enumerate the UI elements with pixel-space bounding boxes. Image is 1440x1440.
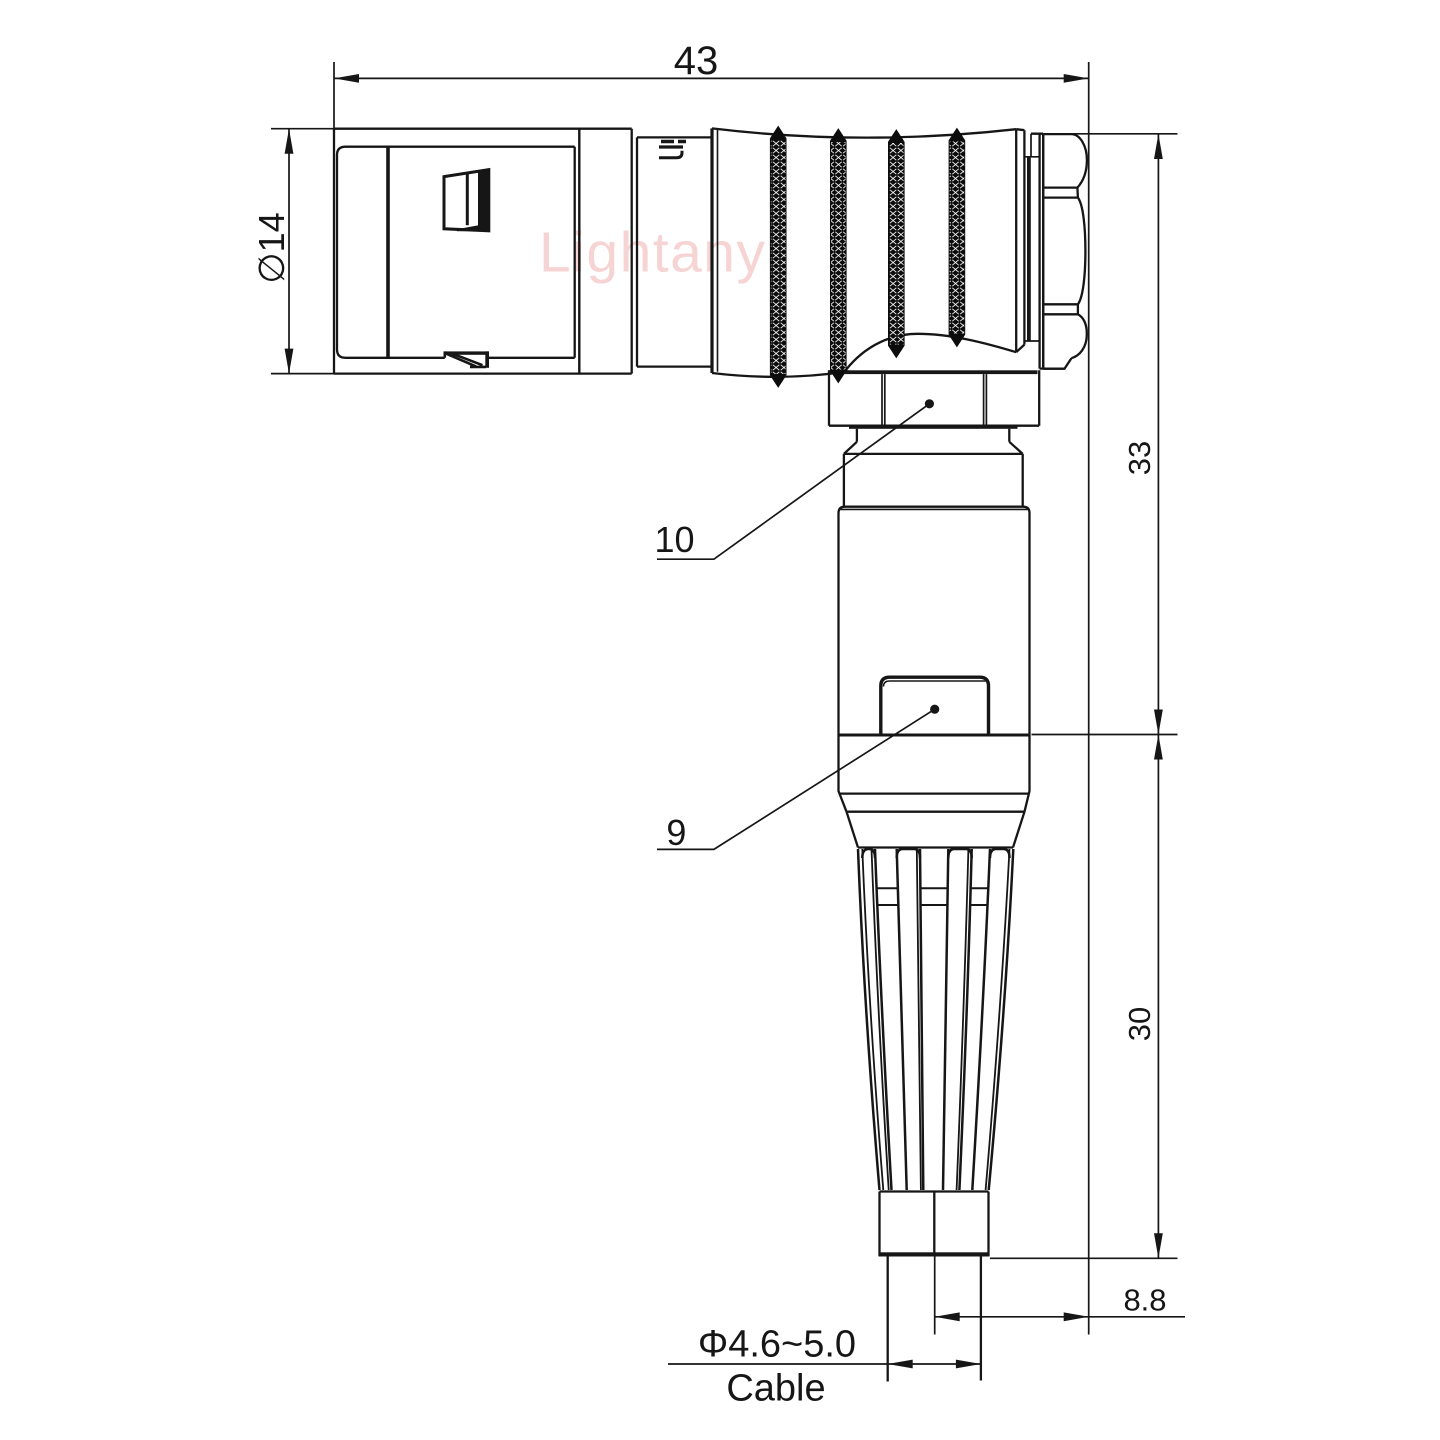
svg-text:43: 43 [674,39,719,83]
svg-text:Lightany: Lightany [539,221,767,285]
svg-text:9: 9 [666,812,686,853]
svg-text:∅14: ∅14 [251,212,292,283]
svg-text:8.8: 8.8 [1123,1283,1166,1318]
svg-text:30: 30 [1122,1007,1157,1041]
svg-text:Cable: Cable [726,1368,825,1410]
svg-text:Φ4.6~5.0: Φ4.6~5.0 [698,1324,856,1366]
svg-text:33: 33 [1122,441,1157,475]
svg-text:10: 10 [654,519,694,560]
